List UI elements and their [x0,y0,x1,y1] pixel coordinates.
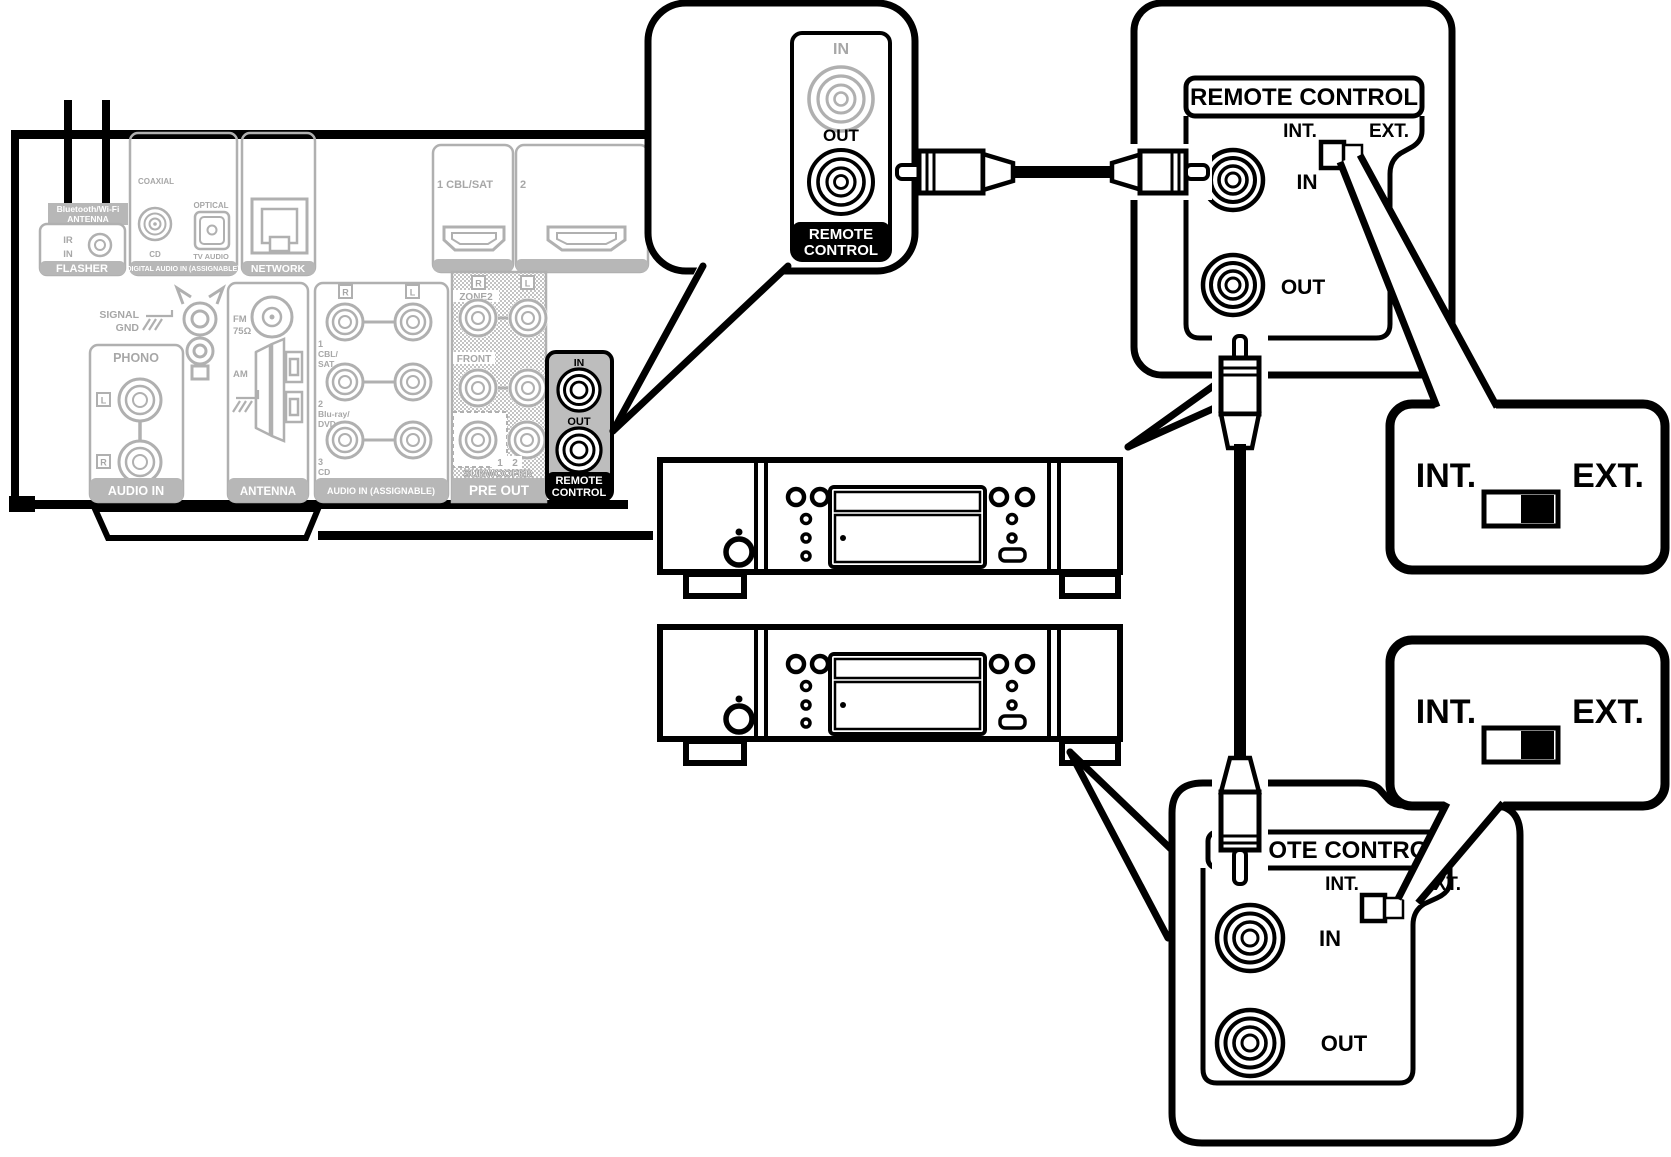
phono-r-label: R [100,458,107,468]
usb-port-1 [1000,549,1025,561]
row3-cd: CD [318,467,330,477]
cd1-foot-right [1062,574,1118,596]
audio-in-header-r: R [342,288,349,298]
bubble-remote-label2: CONTROL [804,242,878,259]
tv-audio-label: TV AUDIO [193,252,229,261]
plug-down-taper [1221,758,1259,792]
bubble-remote-label1: REMOTE [809,226,873,243]
signal-label: SIGNAL [99,309,139,321]
row2-bluray: Blu-ray/ [318,409,350,419]
rca-cable-top [897,144,1212,200]
row1-cbl: CBL/ [318,349,338,359]
receiver-remote-label1: REMOTE [555,475,602,487]
cable-top-wire [1008,166,1116,178]
cd2-foot-left [686,741,744,763]
cd1-foot-left [686,574,744,596]
fm-label: FM [233,314,247,325]
power-led-1 [736,529,743,536]
phono-l-label: L [101,396,107,406]
row2-num: 2 [318,399,323,409]
pre-out-section: R L ZONE2 FRONT 1 2 SUBWOOFER PRE OUT [452,272,548,502]
antenna-section: FM 75Ω AM ANTENNA [228,283,308,502]
callout2-ext-label: EXT. [1572,693,1644,731]
receiver-rear-panel: Bluetooth/Wi-Fi ANTENNA IR IN FLASHER CO… [9,100,655,540]
receiver-remote-out-label: OUT [567,416,591,428]
panel-top-int-label: INT. [1283,121,1317,142]
signal-gnd-section: SIGNAL GND [99,288,223,379]
digital-audio-section: COAXIAL CD OPTICAL TV AUDIO DIGITAL AUDI… [126,133,239,275]
phono-section: PHONO L R AUDIO IN [90,345,183,502]
antenna-label: ANTENNA [240,486,296,498]
hdmi1-label: 1 CBL/SAT [437,179,493,191]
panel-top-title: REMOTE CONTROL [1190,84,1418,111]
bt-antenna-line1: Bluetooth/Wi-Fi [57,204,120,214]
power-led-2 [736,696,743,703]
front-label: FRONT [457,354,491,365]
ohm-label: 75Ω [233,326,252,337]
panel-bottom-out-jack [1217,1010,1283,1076]
bubble-in-label: IN [833,41,849,58]
ground-symbol-1 [143,310,172,330]
rca-plug-down [1212,756,1268,888]
cd-label: CD [149,250,161,259]
phono-label: PHONO [113,351,159,365]
hdmi2-section: 2 [516,145,648,272]
plug-up-taper [1221,414,1259,448]
audio-in-assignable-section: R L 1 CBL/ SAT 2 Blu-ray/ DVD 3 CD AUDIO… [315,283,448,502]
diagram-remote-control-connection: Bluetooth/Wi-Fi ANTENNA IR IN FLASHER CO… [0,0,1671,1157]
bubble-out-label: OUT [823,126,860,145]
antenna-bracket-left [64,100,72,204]
receiver-foot [95,509,318,538]
panel-top-out-label: OUT [1281,276,1326,299]
network-section: NETWORK [242,133,315,275]
pre-out-label: PRE OUT [469,483,530,498]
bt-antenna-line2: ANTENNA [67,214,109,224]
callout-bubble-remote: IN OUT REMOTE CONTROL [613,3,915,431]
panel-bottom-out-label: OUT [1321,1031,1368,1056]
panel-top-ext-label: EXT. [1369,121,1409,142]
diagram-canvas: Bluetooth/Wi-Fi ANTENNA IR IN FLASHER CO… [0,0,1671,1157]
panel-bottom-int-ext-switch [1362,895,1403,921]
hdmi2-label: 2 [520,179,526,191]
plug-down-body [1221,792,1259,850]
audio-in-assignable-label: AUDIO IN (ASSIGNABLE) [327,486,435,496]
panel-top-out-jack [1203,255,1263,315]
receiver-remote-control-section: IN OUT REMOTE CONTROL [547,352,612,500]
ground-symbol-2 [233,390,258,412]
flasher-label: FLASHER [56,263,108,275]
flasher-section: IR IN FLASHER [40,224,125,275]
am-terminal [256,339,302,441]
callout1-int-label: INT. [1416,457,1476,495]
hdmi2-port [548,227,625,250]
cd-player-2 [660,627,1120,763]
pre-out-header-l: L [525,279,531,289]
antenna-bracket-right [102,100,110,204]
network-label: NETWORK [251,263,306,275]
plug-down-tip [1234,850,1246,884]
power-button-2 [726,706,752,732]
bubble-in-jack [809,67,873,131]
rca-cable-vertical [1212,330,1268,762]
coaxial-label: COAXIAL [138,177,174,186]
optical-label: OPTICAL [193,201,228,210]
panel-bottom-int-label: INT. [1325,874,1359,895]
receiver-remote-in-label: IN [574,357,585,369]
callout2-switch [1484,728,1558,762]
cable-vertical-wire [1234,444,1246,762]
cd-player-1 [660,460,1120,596]
ir-in-label: IN [63,249,73,260]
plug-up-body [1221,358,1259,414]
bt-antenna-label: Bluetooth/Wi-Fi ANTENNA [48,203,128,225]
row3-num: 3 [318,457,323,467]
panel-top-in-label: IN [1297,171,1318,194]
usb-port-2 [1000,716,1025,728]
callout1-switch [1484,492,1558,526]
gnd-label: GND [116,322,140,334]
receiver-front-lip [318,531,653,540]
panel-bottom-in-label: IN [1319,926,1341,951]
panel-bottom-in-jack [1217,905,1283,971]
am-label: AM [233,369,248,380]
ir-label: IR [63,235,73,246]
digital-audio-label: DIGITAL AUDIO IN (ASSIGNABLE) [126,266,239,273]
receiver-left-edge [11,130,19,502]
audio-in-label: AUDIO IN [108,484,164,498]
row1-num: 1 [318,339,323,349]
hdmi1-section: 1 CBL/SAT [433,145,513,272]
bubble-out-jack [809,150,873,214]
receiver-remote-label2: CONTROL [552,487,607,499]
pre-out-header-r: R [475,279,482,289]
callout1-ext-label: EXT. [1572,457,1644,495]
power-button-1 [726,539,752,565]
pointer-cd2 [1070,752,1174,938]
callout2-int-label: INT. [1416,693,1476,731]
rca-plug-right [1112,144,1212,200]
callout-int-ext-2: INT. EXT. [1390,640,1665,905]
audio-in-header-l: L [410,288,416,298]
